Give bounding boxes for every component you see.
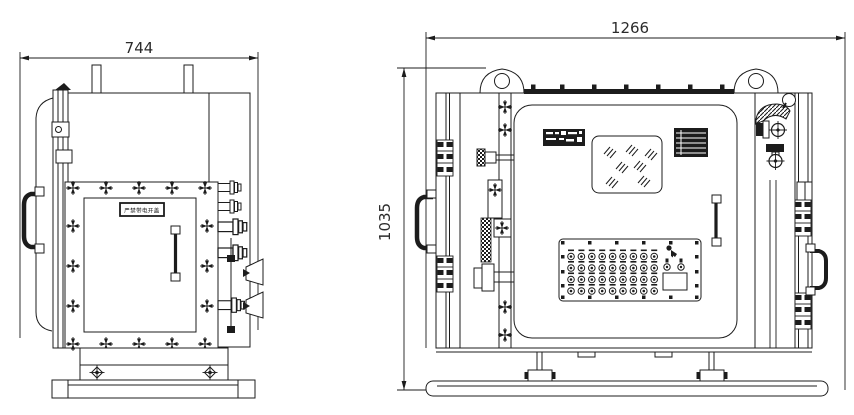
technical-drawing: 744	[0, 0, 854, 415]
nameplate-small	[543, 129, 585, 146]
door-swing-line	[36, 98, 53, 331]
front-height-value: 1035	[376, 203, 394, 241]
hinge-post-left	[92, 65, 101, 93]
lever-label-plate	[766, 144, 784, 152]
side-base	[52, 348, 255, 398]
panel-display-window	[663, 273, 687, 290]
side-door-panel	[84, 198, 196, 332]
lifting-eye-right	[734, 69, 778, 93]
front-door	[514, 105, 737, 338]
skid-base	[426, 381, 828, 396]
inspection-window	[592, 136, 662, 193]
top-flange-rail	[524, 89, 734, 94]
side-left-handle	[24, 187, 44, 253]
side-door-warning-plate: 严禁带电开盖	[120, 203, 164, 216]
side-view: 744	[20, 39, 263, 398]
hinge-post-right	[184, 65, 193, 93]
front-view: 1266 1035	[376, 19, 845, 396]
side-base-plate	[52, 380, 255, 398]
front-base	[426, 352, 828, 396]
warning-label-text: 严禁带电开盖	[124, 207, 160, 215]
button-panel	[559, 239, 701, 301]
front-width-value: 1266	[611, 19, 649, 37]
support-leg-left	[525, 352, 556, 381]
front-left-handle	[417, 190, 436, 253]
side-pedestal	[80, 348, 228, 380]
side-width-value: 744	[125, 39, 154, 57]
support-leg-right	[697, 352, 728, 381]
top-rail-bolts	[531, 85, 725, 90]
drawing-canvas: 744	[0, 0, 854, 415]
side-door: 严禁带电开盖	[65, 181, 218, 351]
lifting-eye-left	[480, 69, 524, 93]
hinge-block-lower	[56, 150, 72, 163]
nameplate-table	[674, 128, 708, 157]
hinge-rail-cap	[55, 83, 71, 90]
